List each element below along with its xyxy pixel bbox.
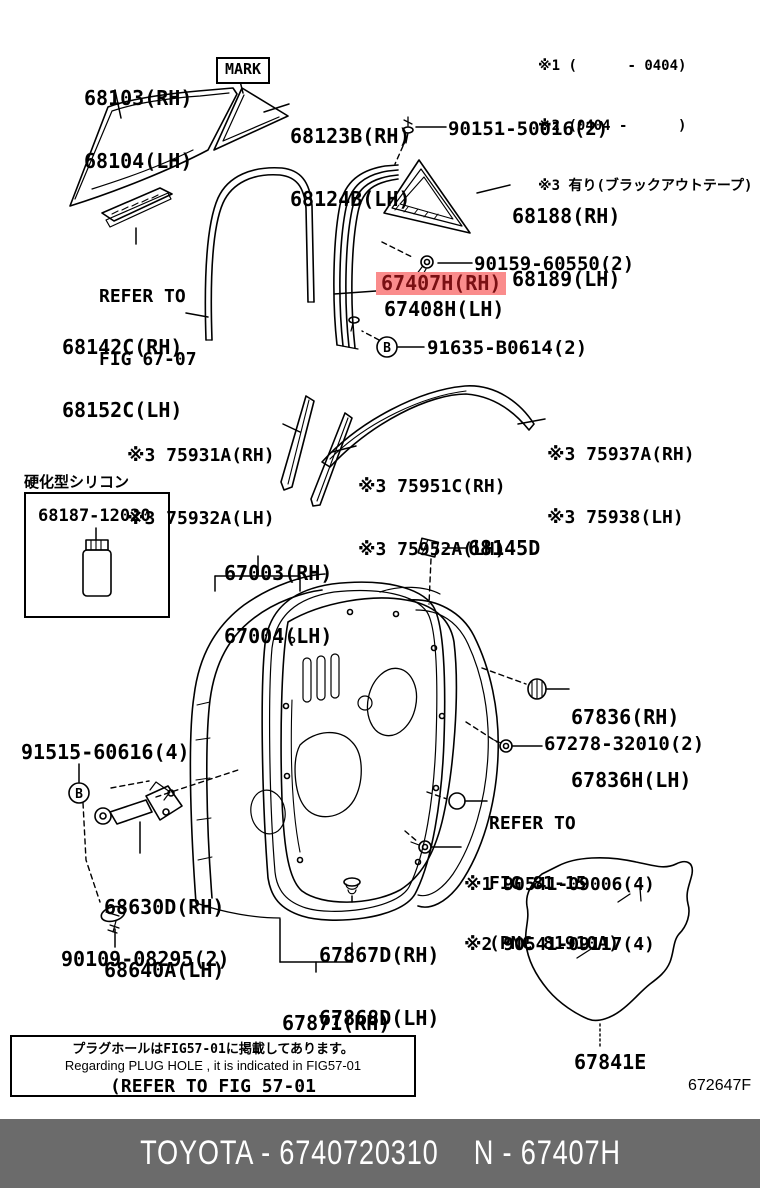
label-roof-molding-rh: ※3 75937A(RH) (547, 444, 695, 465)
label-quarter-glass[interactable]: 68188(RH) 68189(LH) (512, 164, 620, 311)
label-screw-90541[interactable]: ※1 90541-09006(4) ※2 90541-09117(4) (464, 835, 655, 975)
label-belt-front-rh: ※3 75931A(RH) (127, 445, 275, 466)
label-quarter-glass-rh: 68188(RH) (512, 206, 620, 227)
label-check[interactable]: 68630D(RH) 68640A(LH) (104, 855, 224, 1002)
glass-channel-drawing (102, 188, 172, 227)
quarter-molding-drawing (214, 88, 288, 150)
label-belt-rear-rh: ※3 75951C(RH) (358, 476, 506, 497)
note-jp: プラグホールはFIG57-01に掲載してあります。 (12, 1042, 414, 1058)
clip-67867-icon (344, 878, 360, 894)
label-clip-67278[interactable]: 67278-32010(2) (544, 734, 704, 755)
silicon-caption: 硬化型シリコン (24, 472, 129, 493)
label-90541-v1: ※1 90541-09006(4) (464, 875, 655, 895)
label-glass-rh: 68103(RH) (84, 88, 192, 109)
note-en: Regarding PLUG HOLE , it is indicated in… (12, 1058, 414, 1074)
label-check-rh: 68630D(RH) (104, 897, 224, 918)
circled-b-marker: B (75, 787, 83, 802)
figure-code: 672647F (688, 1077, 751, 1095)
footer-bar: TOYOTA - 6740720310 N - 67407H (0, 1119, 760, 1188)
note-refer: (REFER TO FIG 57-01 (12, 1076, 414, 1097)
label-quarter-molding-lh: 68124B(LH) (290, 189, 410, 210)
label-weatherstrip-rh: 67871(RH) (282, 1013, 390, 1034)
circled-b-marker: B (383, 341, 391, 356)
label-bolt-90109[interactable]: 90109-08295(2) (61, 949, 230, 970)
mark-tag: MARK (216, 57, 270, 84)
label-glass-lh: 68104(LH) (84, 151, 192, 172)
label-bolt-91635[interactable]: 91635-B0614(2) (427, 338, 587, 359)
label-silicon-number[interactable]: 68187-12020 (38, 506, 151, 527)
footer-part-code: N - 67407H (473, 1134, 620, 1173)
label-run-channel-rh: 68142C(RH) (62, 337, 182, 358)
label-frame-selected-rh[interactable]: 67407H(RH) (376, 272, 506, 295)
label-90541-v2: ※2 90541-09117(4) (464, 935, 655, 955)
label-door-panel-rh: 67003(RH) (224, 563, 332, 584)
label-frame-selected-lh[interactable]: 67408H(LH) (384, 299, 504, 320)
label-door-panel[interactable]: 67003(RH) 67004(LH) (224, 521, 332, 668)
label-cushion-68145[interactable]: 68145D (468, 538, 540, 559)
belt-molding-rear-drawing (311, 413, 352, 506)
label-bolt-91515[interactable]: 91515-60616(4) (21, 742, 190, 763)
label-glass[interactable]: 68103(RH) 68104(LH) (84, 46, 192, 193)
label-67867-rh: 67867D(RH) (319, 945, 439, 966)
footer-brand-part: TOYOTA - 6740720310 (140, 1134, 438, 1173)
label-door-panel-lh: 67004(LH) (224, 626, 332, 647)
label-roof-molding-lh: ※3 75938(LH) (547, 507, 695, 528)
label-hole-cover[interactable]: 67841E (574, 1052, 646, 1073)
screw-90541-icon (411, 841, 431, 853)
note-line-1: ※1 ( - 0404) (538, 56, 753, 76)
belt-molding-front-drawing (281, 396, 314, 490)
label-quarter-molding[interactable]: 68123B(RH) 68124B(LH) (290, 84, 410, 231)
door-check-drawing (95, 782, 182, 824)
label-clip-90151[interactable]: 90151-50016(2) (448, 119, 608, 140)
refer-8115-line1: REFER TO (489, 814, 619, 834)
label-67836-rh: 67836(RH) (571, 707, 691, 728)
cushion-67836-icon (528, 679, 546, 699)
parts-diagram-page: B B ※1 ( - 0404) ※2 (0404 - ) ※3 有り(ブラック… (0, 0, 760, 1188)
ref-8115-grommet-icon (449, 793, 465, 809)
plug-hole-note-box: プラグホールはFIG57-01に掲載してあります。 Regarding PLUG… (10, 1035, 416, 1097)
label-quarter-molding-rh: 68123B(RH) (290, 126, 410, 147)
label-roof-molding[interactable]: ※3 75937A(RH) ※3 75938(LH) (547, 402, 695, 549)
